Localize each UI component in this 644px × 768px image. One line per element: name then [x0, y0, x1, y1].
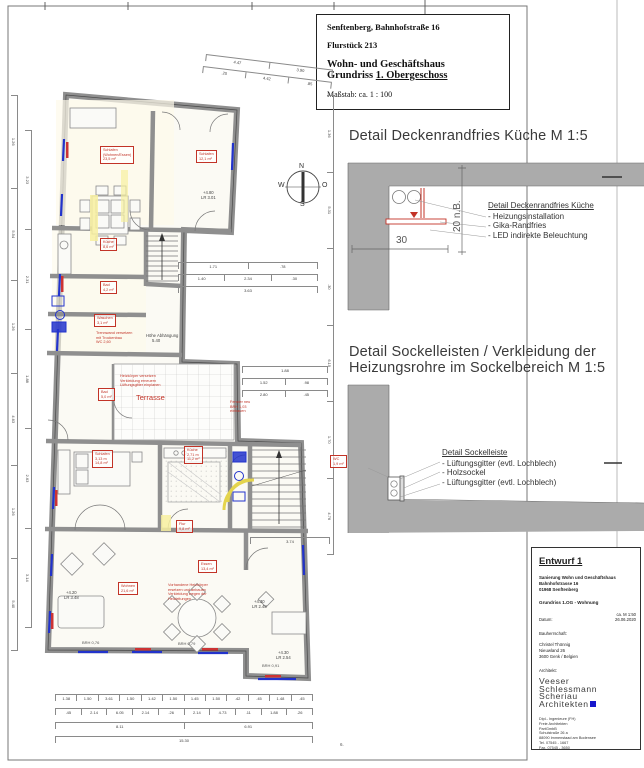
red-annotation-note: Trennwand versetzenmit TrockenbauWC 2,60: [96, 331, 132, 345]
dimension-chain: 1.402.34.30: [178, 274, 318, 281]
dimension-chain: 2.80.45: [242, 390, 328, 397]
plan-text: N: [299, 163, 304, 170]
dimension-chain: 1.71.78: [178, 262, 318, 269]
plan-text: 6.: [340, 742, 344, 747]
plan-text: W: [278, 182, 285, 189]
room-label: Flur9,8 m²: [176, 520, 193, 533]
room-label: Küche8,6 m²: [100, 238, 117, 251]
red-annotation-note: Fenster neuBRH 1,03einbauen: [230, 400, 250, 414]
plan-text: S: [300, 201, 305, 208]
room-label: Bad4,2 m²: [100, 281, 117, 294]
dimension-chain: 1.88: [242, 366, 328, 373]
dimension-chain: 8.116.91: [55, 722, 313, 729]
plan-text: LR 3.48: [64, 595, 79, 600]
dimension-chain: 1.381.503.611.501.421.501.451.50.42.451.…: [55, 694, 313, 701]
dimension-chain: 1.265.541.264.631.265.40: [11, 95, 18, 651]
dimension-chain: 15.30: [55, 736, 313, 743]
plan-text: Höhe Abhängung: [146, 333, 178, 338]
plan-annotations: Schlafen(Wohnen/Essen)23,5 m²Schlafen12,…: [0, 0, 644, 768]
plan-text: LR 2.48: [252, 604, 267, 609]
dimension-chain: 3.232.311.882.633.14: [25, 130, 32, 628]
room-label: Schlafen12,1 m²: [196, 150, 217, 163]
dimension-chain: 3.63: [178, 286, 318, 293]
room-label: WC1,9 m²: [330, 455, 347, 468]
dimension-chain: 1.365.31.306.151.704.76: [327, 95, 334, 555]
red-annotation-note: Heizkörper versetzenVerkleidung erneuern…: [120, 374, 161, 388]
room-label: Wohnen21,6 m²: [118, 582, 138, 595]
red-annotation-note: Vorhandene Heizkörperersetzen und anbaue…: [168, 583, 208, 601]
plan-text: BRH 0,79: [178, 641, 195, 646]
plan-text: O: [322, 182, 327, 189]
drawing-sheet: Senftenberg, Bahnhofstraße 16 Flurstück …: [0, 0, 644, 768]
dimension-chain: 3.74: [250, 537, 330, 544]
room-label: Essen13,4 m²: [198, 560, 217, 573]
plan-text: 5.40: [152, 338, 160, 343]
room-label: Schlafen(Wohnen/Essen)23,5 m²: [100, 146, 134, 164]
room-label: Schlafen3,13 m14,8 m²: [92, 450, 113, 468]
plan-text: BRH 0,91: [262, 663, 279, 668]
plan-text: BRH 0,76: [82, 640, 99, 645]
room-label: Waschen3,1 m²: [94, 314, 116, 327]
dimension-chain: .452.146.052.14.262.144.73.111.88.26: [55, 708, 313, 715]
plan-text: LR 2.54: [276, 655, 291, 660]
plan-text: LR 3.01: [201, 195, 216, 200]
room-label: Küche2,71 m11,2 m²: [184, 446, 203, 464]
dimension-chain: 1.52.98: [242, 378, 328, 385]
room-label: Bad5,0 m²: [98, 388, 115, 401]
plan-text: Terrasse: [136, 393, 165, 402]
